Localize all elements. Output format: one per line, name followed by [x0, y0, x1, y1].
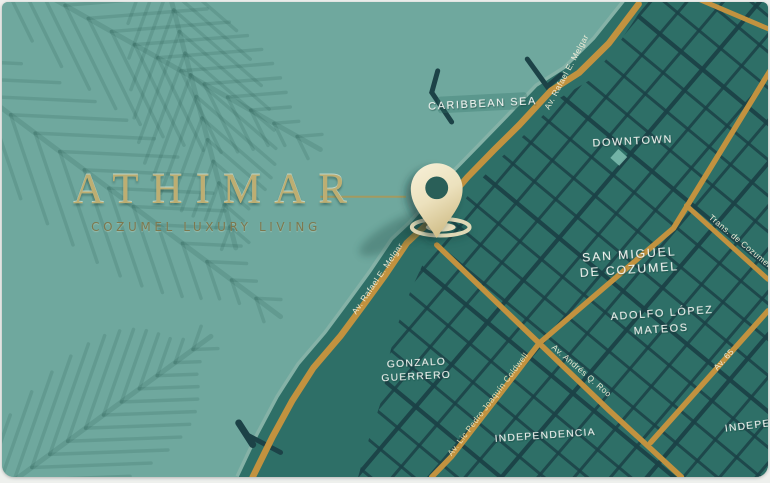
page-background: CARIBBEAN SEA DOWNTOWN SAN MIGUEL DE COZ…	[0, 0, 770, 483]
pin-hole	[425, 177, 448, 200]
map-svg: CARIBBEAN SEA DOWNTOWN SAN MIGUEL DE COZ…	[2, 2, 768, 477]
map-card: CARIBBEAN SEA DOWNTOWN SAN MIGUEL DE COZ…	[2, 2, 768, 477]
